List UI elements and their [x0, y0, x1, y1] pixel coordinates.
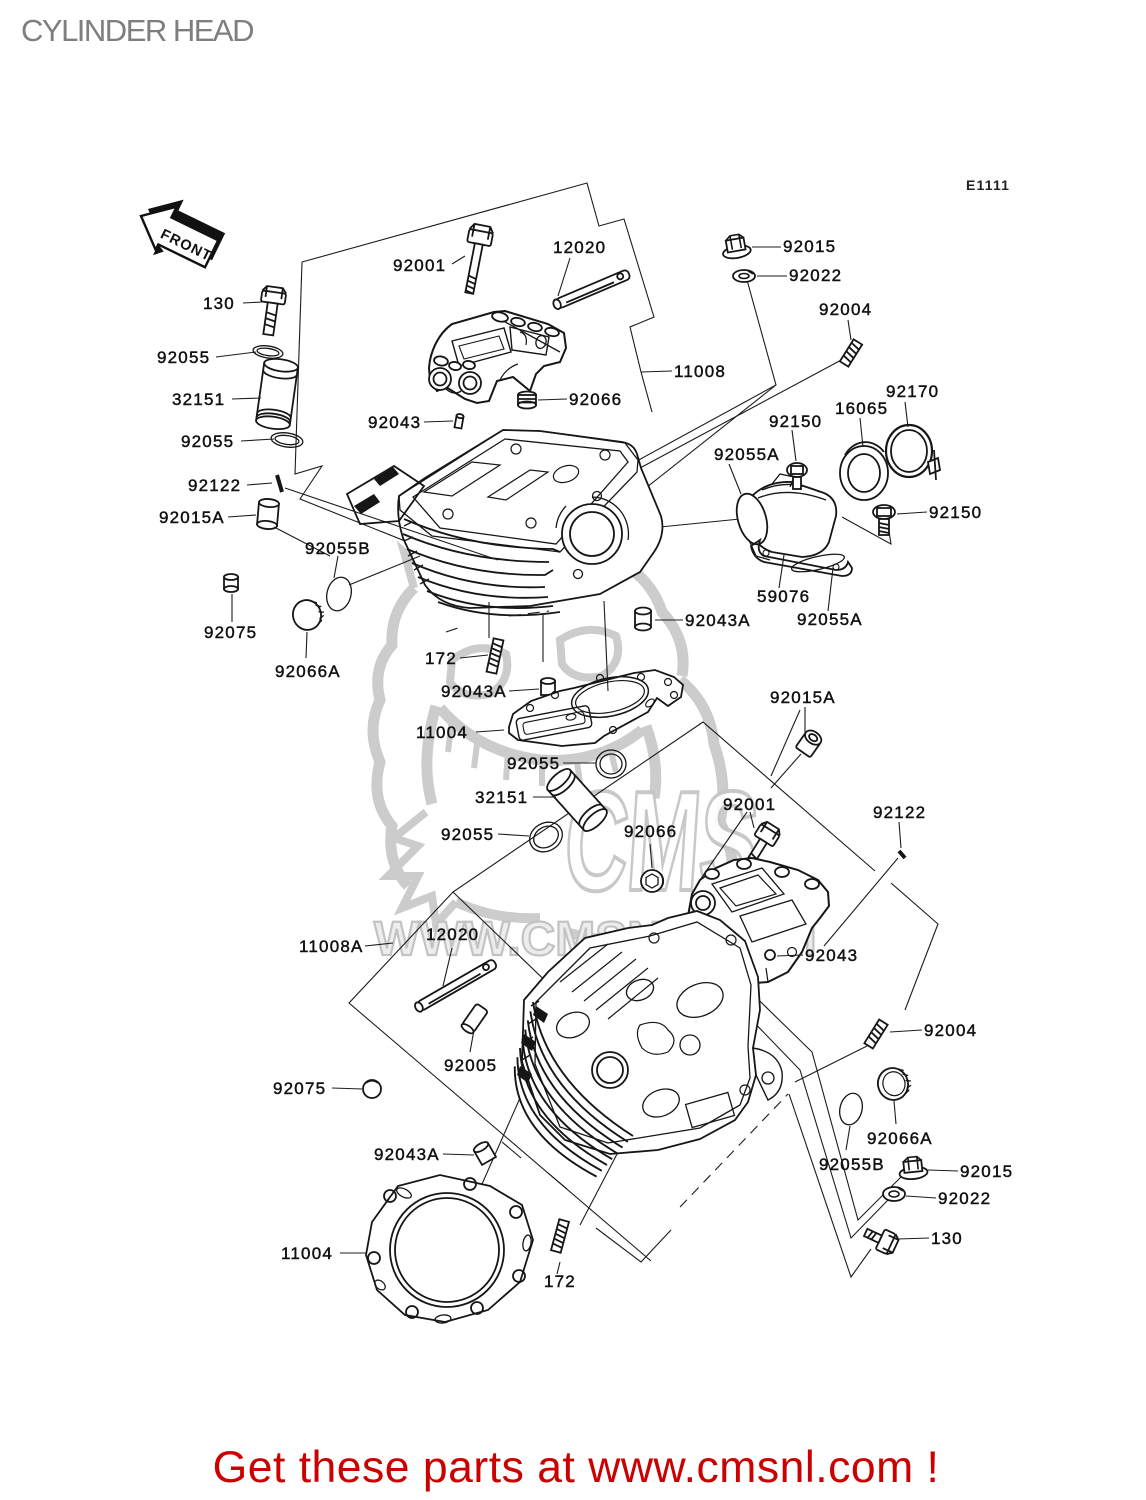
svg-text:92015: 92015: [783, 237, 836, 256]
svg-text:92055B: 92055B: [819, 1155, 885, 1174]
svg-text:32151: 32151: [475, 788, 528, 807]
svg-text:92055: 92055: [157, 348, 210, 367]
svg-text:172: 172: [544, 1272, 576, 1291]
svg-text:92001: 92001: [393, 256, 446, 275]
svg-text:92043: 92043: [805, 946, 858, 965]
svg-text:92015A: 92015A: [159, 508, 225, 527]
svg-text:92075: 92075: [204, 623, 257, 642]
svg-text:E1111: E1111: [966, 177, 1010, 193]
svg-text:92055: 92055: [181, 432, 234, 451]
svg-text:92022: 92022: [938, 1189, 991, 1208]
svg-text:92001: 92001: [723, 795, 776, 814]
svg-text:92066A: 92066A: [867, 1129, 933, 1148]
svg-text:92004: 92004: [924, 1021, 977, 1040]
svg-text:92055A: 92055A: [797, 610, 863, 629]
svg-text:92055: 92055: [441, 825, 494, 844]
svg-text:130: 130: [931, 1229, 963, 1248]
svg-text:92066A: 92066A: [275, 662, 341, 681]
svg-text:92055: 92055: [507, 754, 560, 773]
svg-text:59076: 59076: [757, 587, 810, 606]
svg-text:CYLINDER HEAD: CYLINDER HEAD: [21, 13, 253, 48]
svg-text:130: 130: [203, 294, 235, 313]
svg-text:92043A: 92043A: [685, 611, 751, 630]
svg-text:92022: 92022: [789, 266, 842, 285]
svg-text:92055A: 92055A: [714, 445, 780, 464]
svg-text:92043A: 92043A: [374, 1145, 440, 1164]
svg-text:11008A: 11008A: [299, 937, 364, 956]
svg-text:12020: 12020: [426, 925, 479, 944]
svg-text:92043A: 92043A: [441, 682, 507, 701]
svg-text:12020: 12020: [553, 238, 606, 257]
svg-text:92015: 92015: [960, 1162, 1013, 1181]
svg-text:92066: 92066: [569, 390, 622, 409]
svg-text:Get these parts at www.cmsnl.c: Get these parts at www.cmsnl.com !: [213, 1443, 940, 1492]
svg-text:92150: 92150: [929, 503, 982, 522]
svg-text:92066: 92066: [624, 822, 677, 841]
svg-text:92043: 92043: [368, 413, 421, 432]
svg-text:92005: 92005: [444, 1056, 497, 1075]
svg-text:16065: 16065: [835, 399, 888, 418]
svg-text:92055B: 92055B: [305, 539, 371, 558]
svg-text:92150: 92150: [769, 412, 822, 431]
svg-text:92122: 92122: [188, 476, 241, 495]
svg-text:92004: 92004: [819, 300, 872, 319]
svg-text:11004: 11004: [281, 1244, 333, 1263]
svg-text:92015A: 92015A: [770, 688, 836, 707]
svg-text:11004: 11004: [416, 723, 468, 742]
svg-text:92170: 92170: [886, 382, 939, 401]
svg-text:11008: 11008: [674, 362, 726, 381]
svg-text:32151: 32151: [172, 390, 225, 409]
svg-text:92122: 92122: [873, 803, 926, 822]
svg-text:92075: 92075: [273, 1079, 326, 1098]
svg-text:172: 172: [425, 649, 457, 668]
